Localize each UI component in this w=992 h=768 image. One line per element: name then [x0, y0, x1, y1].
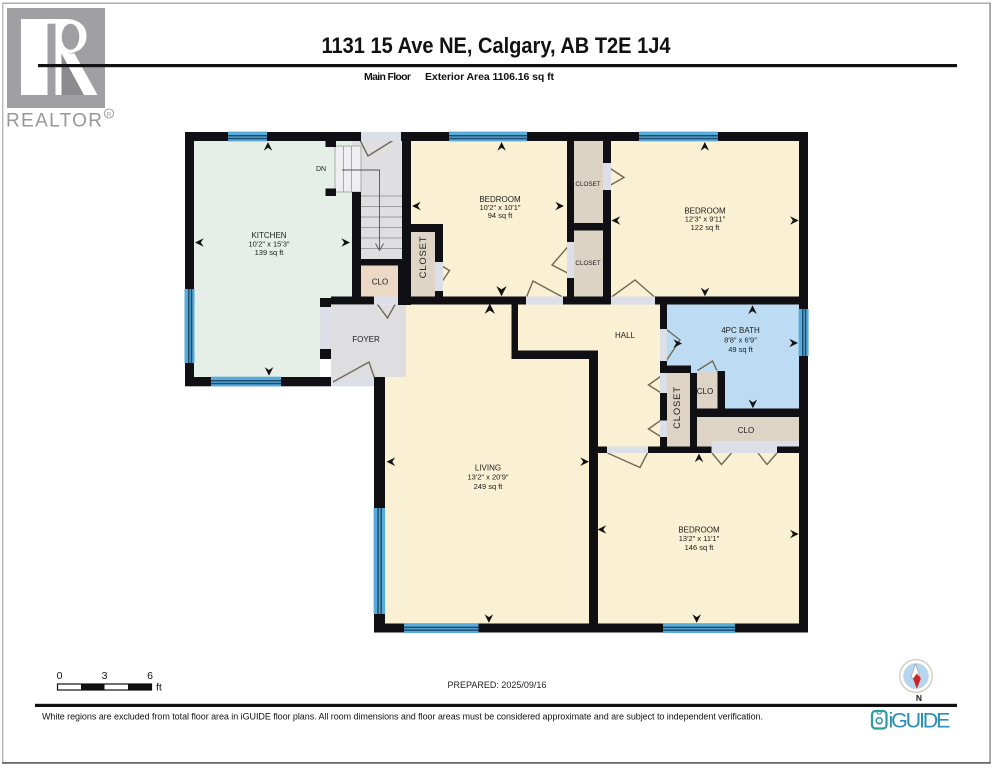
svg-text:LIVING: LIVING [475, 463, 501, 472]
svg-text:ft: ft [156, 682, 162, 694]
svg-text:13′2″ x 20′9″: 13′2″ x 20′9″ [467, 473, 508, 482]
svg-text:CLO: CLO [372, 277, 388, 286]
svg-text:iGUIDE: iGUIDE [889, 709, 951, 733]
svg-text:CLOSET: CLOSET [418, 236, 429, 279]
svg-text:CLOSET: CLOSET [575, 181, 600, 188]
svg-text:R: R [107, 112, 112, 119]
svg-text:6: 6 [147, 670, 153, 682]
svg-text:REALTOR: REALTOR [6, 111, 104, 132]
svg-text:White regions are excluded fro: White regions are excluded from total fl… [42, 712, 763, 722]
svg-text:N: N [916, 693, 922, 703]
svg-text:1131 15 Ave NE, Calgary, AB T2: 1131 15 Ave NE, Calgary, AB T2E 1J4 [322, 33, 671, 58]
svg-text:HALL: HALL [615, 331, 636, 340]
svg-text:94 sq ft: 94 sq ft [488, 211, 514, 220]
svg-text:CLO: CLO [697, 387, 713, 396]
svg-text:BEDROOM: BEDROOM [678, 525, 720, 534]
svg-text:CLO: CLO [738, 426, 754, 435]
svg-text:122 sq ft: 122 sq ft [691, 223, 721, 232]
svg-text:Exterior Area 1106.16 sq ft: Exterior Area 1106.16 sq ft [425, 71, 555, 83]
svg-text:FOYER: FOYER [352, 335, 380, 344]
svg-text:PREPARED: 2025/09/16: PREPARED: 2025/09/16 [448, 680, 547, 690]
svg-text:4PC BATH: 4PC BATH [721, 326, 760, 335]
svg-text:DN: DN [316, 166, 326, 173]
svg-text:139 sq ft: 139 sq ft [255, 248, 285, 257]
svg-text:0: 0 [57, 670, 63, 682]
svg-text:KITCHEN: KITCHEN [251, 231, 286, 240]
svg-text:8′8″ x 6′9″: 8′8″ x 6′9″ [724, 336, 757, 345]
svg-text:249 sq ft: 249 sq ft [474, 482, 504, 491]
svg-text:CLOSET: CLOSET [575, 260, 600, 267]
svg-text:Main Floor: Main Floor [364, 71, 411, 83]
svg-text:13′2″ x 11′1″: 13′2″ x 11′1″ [679, 534, 720, 543]
svg-text:146 sq ft: 146 sq ft [685, 543, 715, 552]
svg-text:3: 3 [102, 670, 108, 682]
svg-text:49 sq ft: 49 sq ft [728, 345, 754, 354]
svg-text:CLOSET: CLOSET [672, 386, 683, 429]
